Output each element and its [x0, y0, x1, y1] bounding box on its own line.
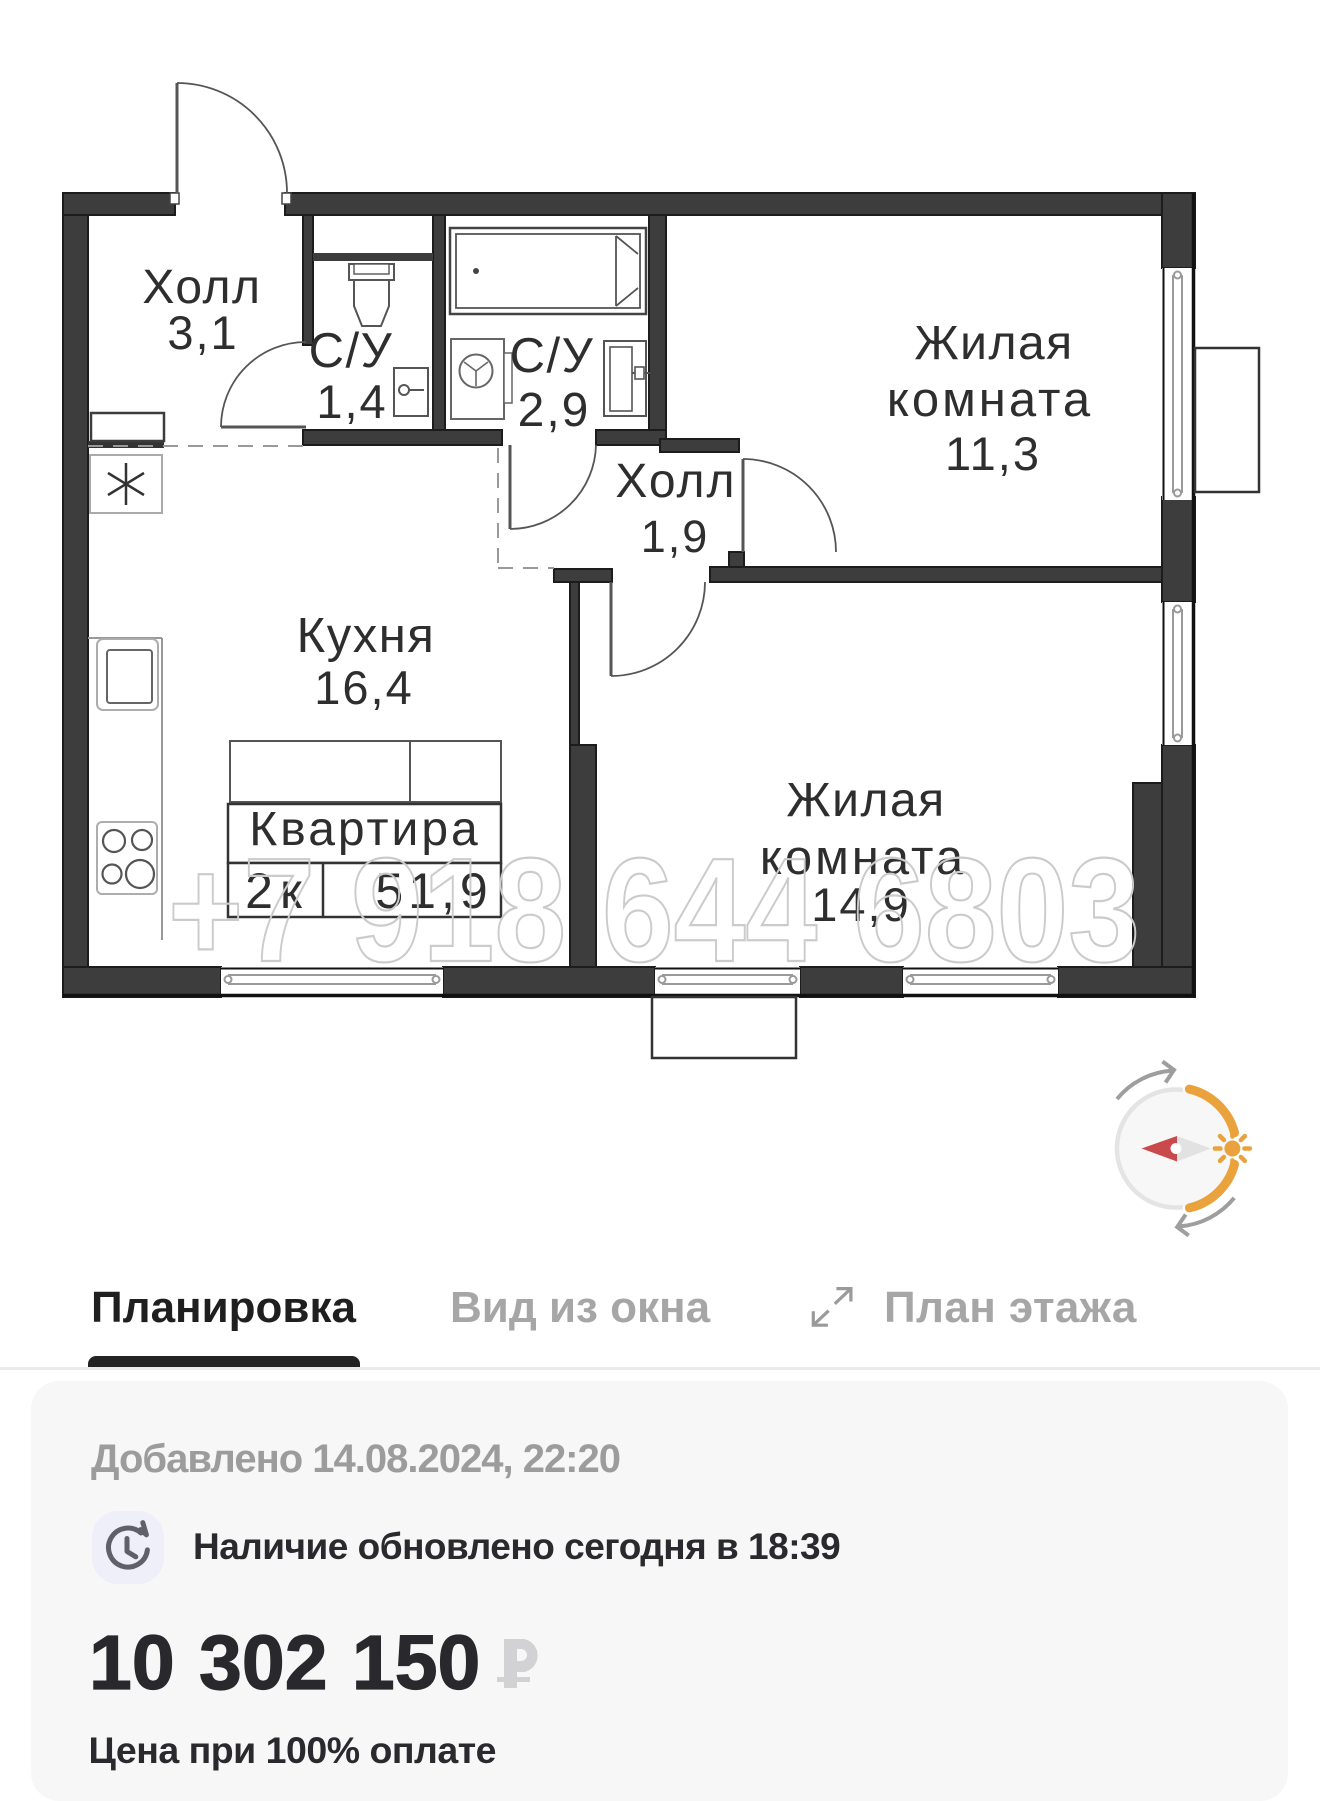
svg-text:+7 918 644 6803: +7 918 644 6803 [168, 828, 1140, 993]
svg-text:Жилая: Жилая [914, 317, 1073, 370]
svg-text:1,4: 1,4 [316, 375, 387, 428]
svg-text:Холл: Холл [615, 455, 736, 508]
svg-text:Кухня: Кухня [297, 609, 436, 663]
svg-text:2,9: 2,9 [518, 384, 591, 437]
svg-text:Жилая: Жилая [786, 774, 945, 827]
svg-text:комната: комната [887, 373, 1093, 427]
svg-text:1,9: 1,9 [641, 511, 710, 562]
svg-text:16,4: 16,4 [314, 661, 413, 714]
svg-text:С/У: С/У [309, 324, 394, 378]
svg-text:11,3: 11,3 [945, 427, 1041, 480]
svg-text:С/У: С/У [510, 329, 595, 383]
svg-text:3,1: 3,1 [167, 306, 238, 359]
